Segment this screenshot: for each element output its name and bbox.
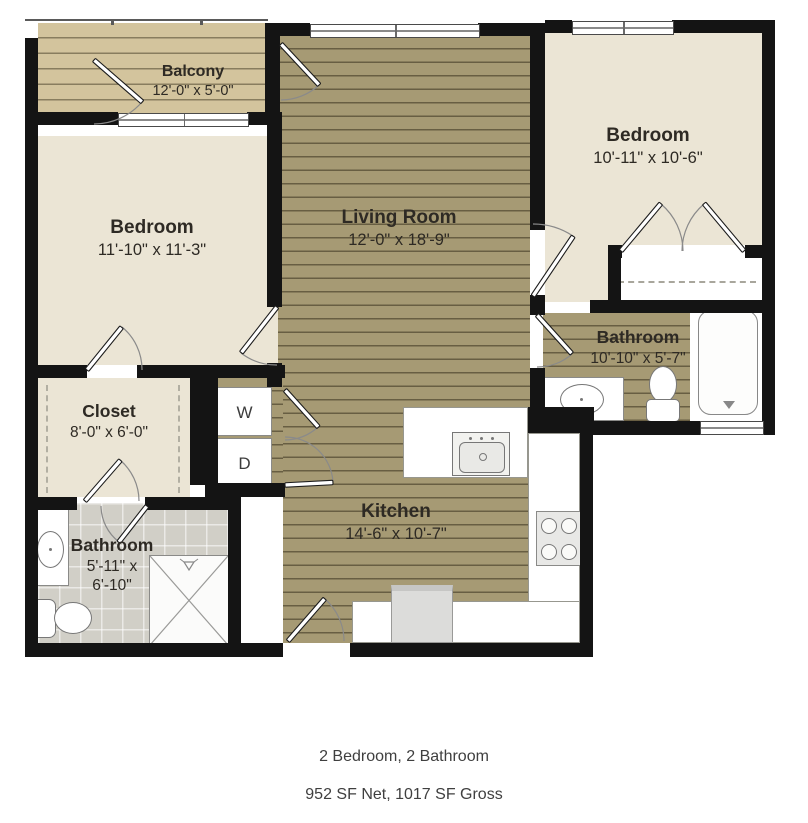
door-swing-laundry-bottom — [285, 437, 333, 487]
room-name: Kitchen — [345, 500, 446, 524]
bathroom-right-label: Bathroom 10'-10" x 5'-7" — [590, 327, 685, 368]
bedroom-left-label: Bedroom 11'-10" x 11'-3" — [98, 216, 206, 260]
bathroom-left-label: Bathroom 5'-11" x 6'-10" — [71, 535, 154, 596]
room-dims: 14'-6" x 10'-7" — [345, 524, 446, 545]
room-dims: 5'-11" x — [71, 557, 154, 576]
floor-plan-page: { "footer": { "title": "2 Bedroom, 2 Bat… — [0, 0, 808, 823]
room-dims: 6'-10" — [71, 576, 154, 595]
room-dims: 11'-10" x 11'-3" — [98, 240, 206, 261]
room-name: Bathroom — [590, 327, 685, 349]
balcony-label: Balcony 12'-0" x 5'-0" — [152, 62, 233, 100]
plan-title: 2 Bedroom, 2 Bathroom — [0, 748, 808, 766]
door-swing-entry — [286, 597, 344, 642]
door-swing-laundry-top — [283, 389, 320, 440]
room-name: Bathroom — [71, 535, 154, 557]
plan-subtitle: 952 SF Net, 1017 SF Gross — [0, 786, 808, 804]
door-swing-bathroom-right — [535, 314, 573, 367]
room-dims: 10'-11" x 10'-6" — [593, 148, 702, 169]
floor-plan: W D — [0, 0, 808, 680]
room-dims: 8'-0" x 6'-0" — [70, 423, 148, 442]
room-dims: 12'-0" x 18'-9" — [341, 230, 456, 251]
door-swing-closet — [83, 459, 139, 503]
bedroom-right-label: Bedroom 10'-11" x 10'-6" — [593, 124, 702, 168]
closet-label: Closet 8'-0" x 6'-0" — [70, 401, 148, 442]
living-room-label: Living Room 12'-0" x 18'-9" — [341, 206, 456, 250]
kitchen-label: Kitchen 14'-6" x 10'-7" — [345, 500, 446, 544]
room-name: Closet — [70, 401, 148, 423]
door-swing-balcony — [93, 58, 144, 124]
door-swing-bedroom-right — [531, 224, 575, 297]
room-name: Bedroom — [98, 216, 206, 240]
room-name: Balcony — [152, 62, 233, 82]
door-swing-closet-right-a — [619, 202, 683, 252]
door-swing-closet-right-b — [682, 202, 746, 252]
room-name: Living Room — [341, 206, 456, 230]
door-swing-bedroom-left — [85, 326, 142, 372]
door-swing-living-balcony — [279, 42, 320, 100]
room-name: Bedroom — [593, 124, 702, 148]
room-dims: 12'-0" x 5'-0" — [152, 82, 233, 100]
door-swing-bedroom-left-hall — [240, 306, 279, 365]
room-dims: 10'-10" x 5'-7" — [590, 349, 685, 368]
